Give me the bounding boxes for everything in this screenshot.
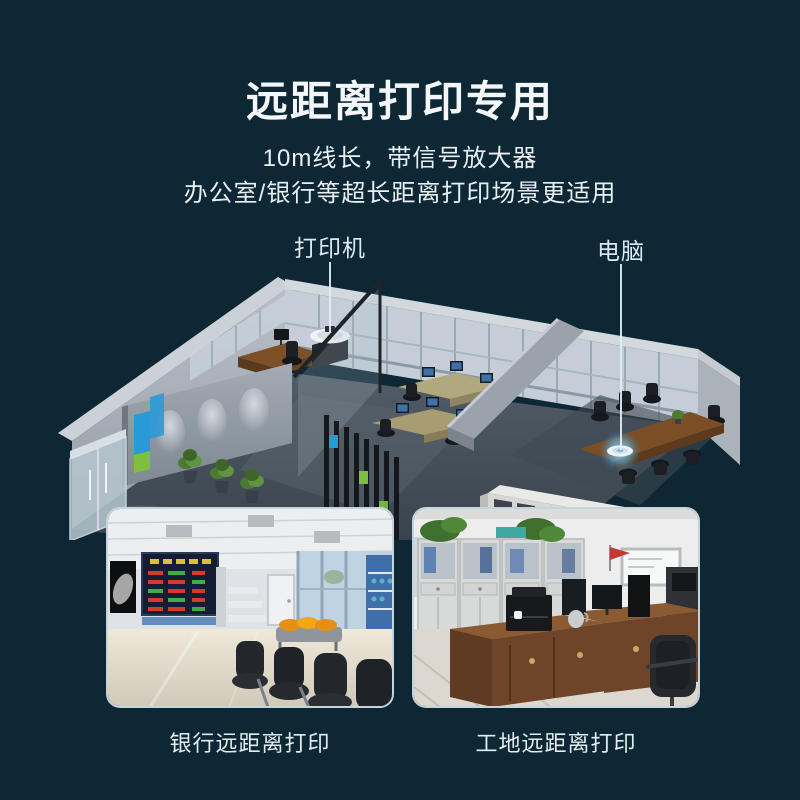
site-photo-caption: 工地远距离打印 xyxy=(412,726,700,758)
bank-photo-illustration xyxy=(108,509,394,708)
printer-callout-label: 打印机 xyxy=(294,229,366,263)
subtitle-line1: 10m线长，带信号放大器 xyxy=(0,138,800,173)
office-scene-svg xyxy=(40,265,760,540)
bank-photo-caption: 银行远距离打印 xyxy=(106,726,394,758)
subtitle-line2: 办公室/银行等超长距离打印场景更适用 xyxy=(0,173,800,208)
office-illustration xyxy=(40,265,760,540)
product-poster: 远距离打印专用 10m线长，带信号放大器 办公室/银行等超长距离打印场景更适用 xyxy=(0,0,800,800)
computer-callout-line xyxy=(620,264,622,450)
page-title: 远距离打印专用 xyxy=(0,68,800,129)
site-office-photo-illustration xyxy=(414,509,700,708)
printer-callout-line xyxy=(329,262,331,332)
bank-photo xyxy=(106,507,394,708)
computer-callout-label: 电脑 xyxy=(597,232,645,266)
site-office-photo xyxy=(412,507,700,708)
